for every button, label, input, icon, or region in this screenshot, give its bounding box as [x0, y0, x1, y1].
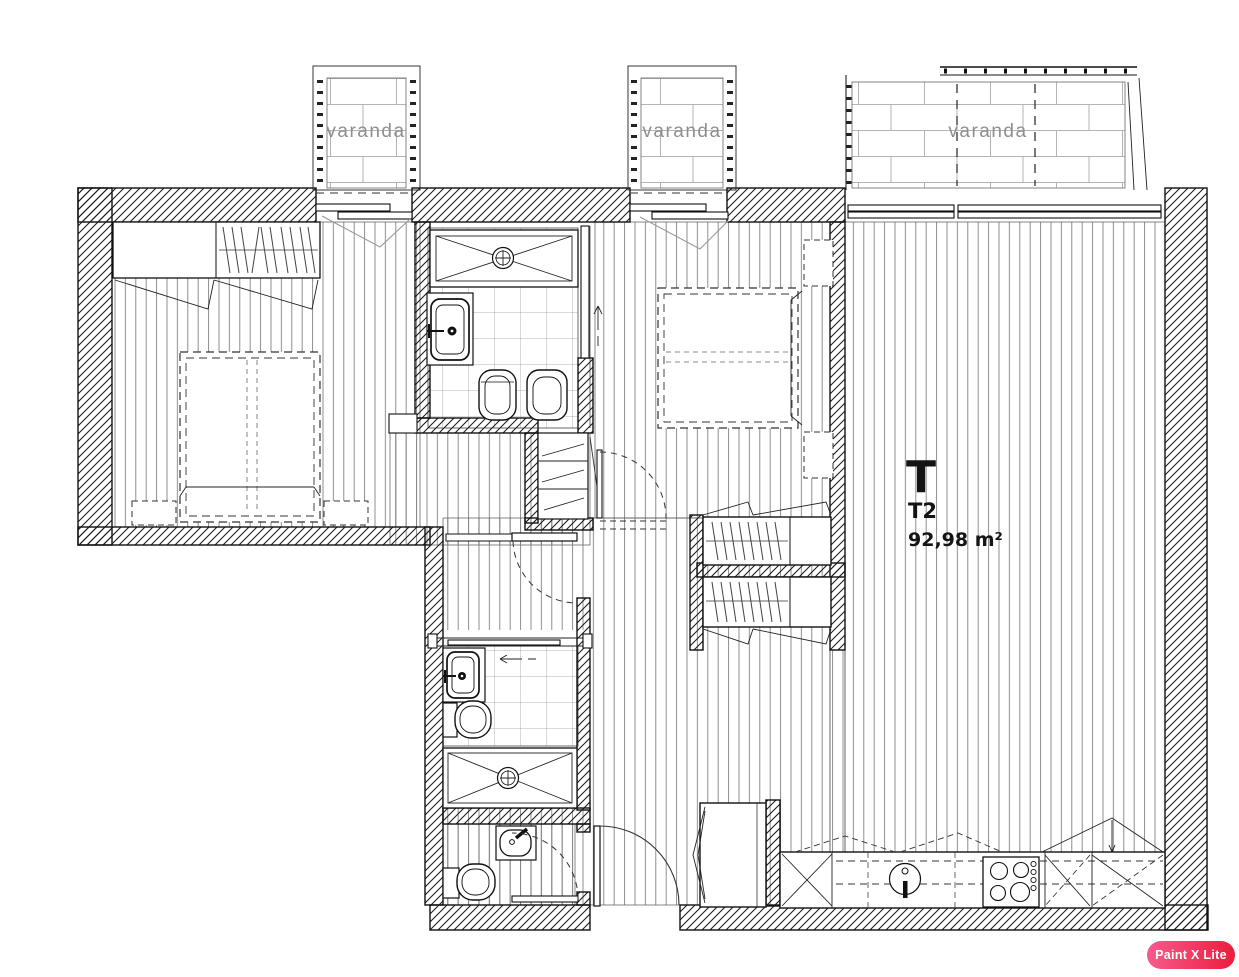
bed-bedroom1	[180, 352, 320, 522]
wall-bathroom1-bottom	[415, 418, 538, 433]
toilet-wc	[443, 864, 495, 900]
washbasin-1	[427, 293, 473, 365]
balcony-2: varanda	[628, 66, 736, 193]
wall-bedroom1-bottom	[78, 527, 430, 545]
wall-closet-bottom	[525, 518, 593, 530]
unit-area: 92,98 m²	[908, 529, 1003, 551]
paint-x-lite-watermark: Paint X Lite	[1147, 941, 1235, 969]
living-room-floor	[845, 222, 1165, 905]
wall-bath2-right	[577, 598, 590, 810]
watermark-label: Paint X Lite	[1155, 948, 1227, 962]
hall-closet	[538, 433, 601, 519]
toilet-1	[527, 370, 567, 420]
balcony-3: varanda	[846, 67, 1147, 190]
unit-type-code: T2	[908, 499, 937, 523]
bedroom1-door-leaf	[389, 414, 417, 433]
sliding-panel-bathroom1	[581, 226, 589, 358]
wall-bathroom1-right	[578, 358, 593, 433]
wall-bottom-left	[430, 905, 590, 930]
wall-top-mid	[412, 188, 630, 222]
balcony1-label: varanda	[326, 121, 405, 142]
balcony3-label: varanda	[948, 121, 1027, 142]
balcony3-railing	[940, 67, 1137, 75]
nightstand-1b	[324, 501, 368, 525]
wall-bottom-right	[680, 905, 1208, 930]
toilet-2	[443, 701, 491, 738]
floor-plan-page: varanda varanda varanda	[0, 0, 1239, 977]
wall-baths-left	[425, 527, 443, 905]
bed-bedroom2	[658, 288, 802, 428]
floors	[112, 222, 1165, 905]
wall-top-right	[727, 188, 845, 222]
wall-left	[78, 188, 112, 545]
window-bedroom2	[630, 204, 728, 219]
wall-corridor-right	[690, 515, 703, 650]
washbasin-2	[443, 648, 485, 702]
balcony-1: varanda	[313, 66, 420, 193]
wall-right	[1165, 188, 1207, 930]
shower-tray-1	[430, 230, 578, 287]
window-bedroom1	[316, 204, 412, 219]
nightstand-1a	[132, 501, 176, 525]
wall-wc-right-top	[577, 824, 590, 832]
bidet-1	[479, 370, 516, 420]
floor-plan-svg: varanda varanda varanda	[0, 0, 1239, 977]
wall-bath2-wc-sep	[443, 808, 590, 824]
wall-kitchen-stub	[766, 800, 780, 906]
cooktop	[983, 857, 1039, 907]
wall-closet-left	[525, 433, 538, 523]
wall-wc-right-bottom	[577, 892, 590, 905]
unit-type-letter: T	[906, 452, 936, 503]
balcony2-label: varanda	[642, 121, 721, 142]
shower-tray-2	[443, 748, 577, 808]
nightstand-2b	[804, 432, 833, 478]
nightstand-2a	[804, 240, 833, 286]
washbasin-wc	[496, 826, 536, 860]
fridge-cabinet	[693, 803, 766, 907]
window-living-room	[848, 205, 1161, 218]
wall-top-left	[78, 188, 316, 222]
